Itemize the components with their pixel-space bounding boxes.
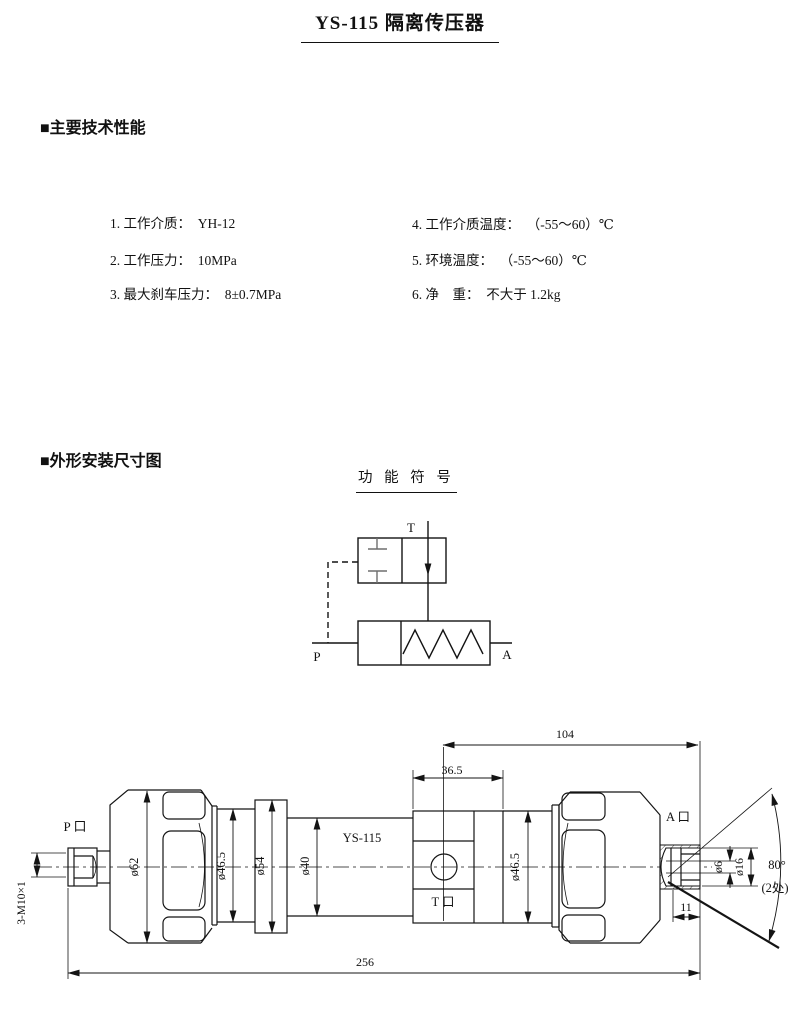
dim-d40-label: ø40 — [298, 857, 312, 876]
angle-80-label: 80° — [768, 858, 786, 872]
dim-11: 11 — [673, 890, 700, 922]
p-port-label: P 口 — [64, 819, 87, 834]
lower-valve-box — [358, 621, 490, 665]
hex-flat-middle — [163, 831, 205, 910]
dim-d46-5-left-label: ø46.5 — [214, 852, 228, 880]
model-label: YS-115 — [343, 831, 381, 845]
dim-104-label: 104 — [556, 727, 574, 741]
dim-d62-label: ø62 — [127, 858, 141, 877]
hex-flat-top — [562, 793, 605, 820]
thread-spec-label: 3-M10×1 — [16, 881, 28, 925]
function-symbol: T P A — [312, 520, 512, 665]
schematic-port-t-label: T — [407, 520, 415, 535]
spring-symbol — [403, 630, 483, 658]
blocked-port-symbol-top — [368, 538, 387, 549]
hex-flat-bottom — [163, 917, 205, 941]
schematic-port-a-label: A — [502, 647, 512, 662]
dim-d16-label: ø16 — [732, 858, 746, 876]
dim-36-5-label: 36.5 — [442, 763, 463, 777]
upper-valve-box — [358, 538, 446, 583]
hex-flat-top — [163, 792, 205, 819]
dim-11-label: 11 — [680, 900, 692, 914]
dim-d46-5-right-label: ø46.5 — [508, 853, 522, 881]
left-hex-body — [110, 790, 212, 943]
technical-drawing-svg: T P A 3-M10×1 P 口 — [0, 0, 800, 1011]
outline-drawing: 3-M10×1 P 口 ø62 — [16, 727, 789, 980]
dim-d54-label: ø54 — [253, 856, 267, 876]
dim-256-label: 256 — [356, 955, 374, 969]
angle-places-label: (2处) — [761, 881, 788, 895]
right-ring — [552, 805, 559, 927]
blocked-port-symbol-bottom — [368, 571, 387, 583]
a-port-label: A 口 — [666, 810, 690, 824]
schematic-port-p-label: P — [313, 649, 320, 664]
datasheet-page: YS-115 隔离传压器 ■主要技术性能 1. 工作介质： YH-12 2. 工… — [0, 0, 800, 1011]
pilot-dashed-line — [328, 562, 358, 643]
dim-36-5: 36.5 — [413, 763, 503, 809]
t-port-label: T 口 — [431, 895, 454, 909]
hex-flat-bottom — [562, 915, 605, 941]
right-hex-body — [559, 792, 660, 943]
dim-d6-label: ø6 — [711, 861, 725, 873]
hex-flat-middle — [562, 830, 605, 908]
